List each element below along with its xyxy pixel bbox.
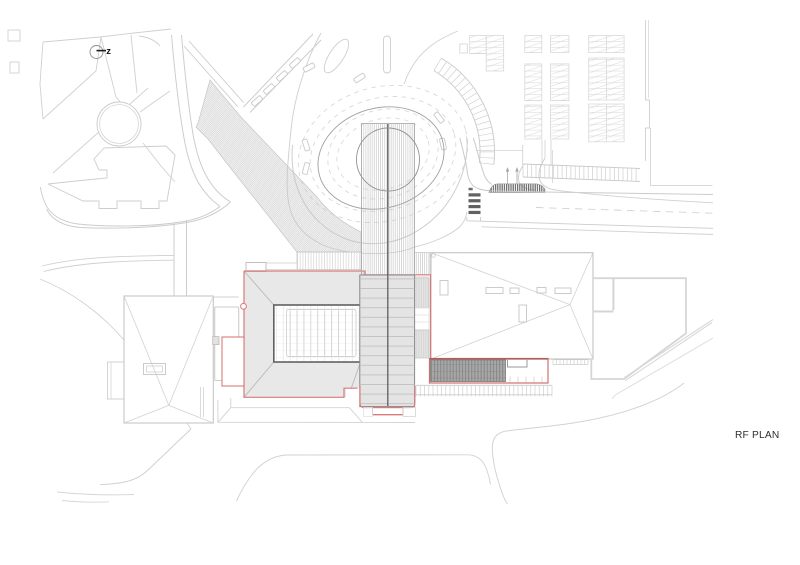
svg-text:z: z bbox=[106, 46, 111, 57]
svg-text:RF PLAN: RF PLAN bbox=[735, 430, 779, 441]
